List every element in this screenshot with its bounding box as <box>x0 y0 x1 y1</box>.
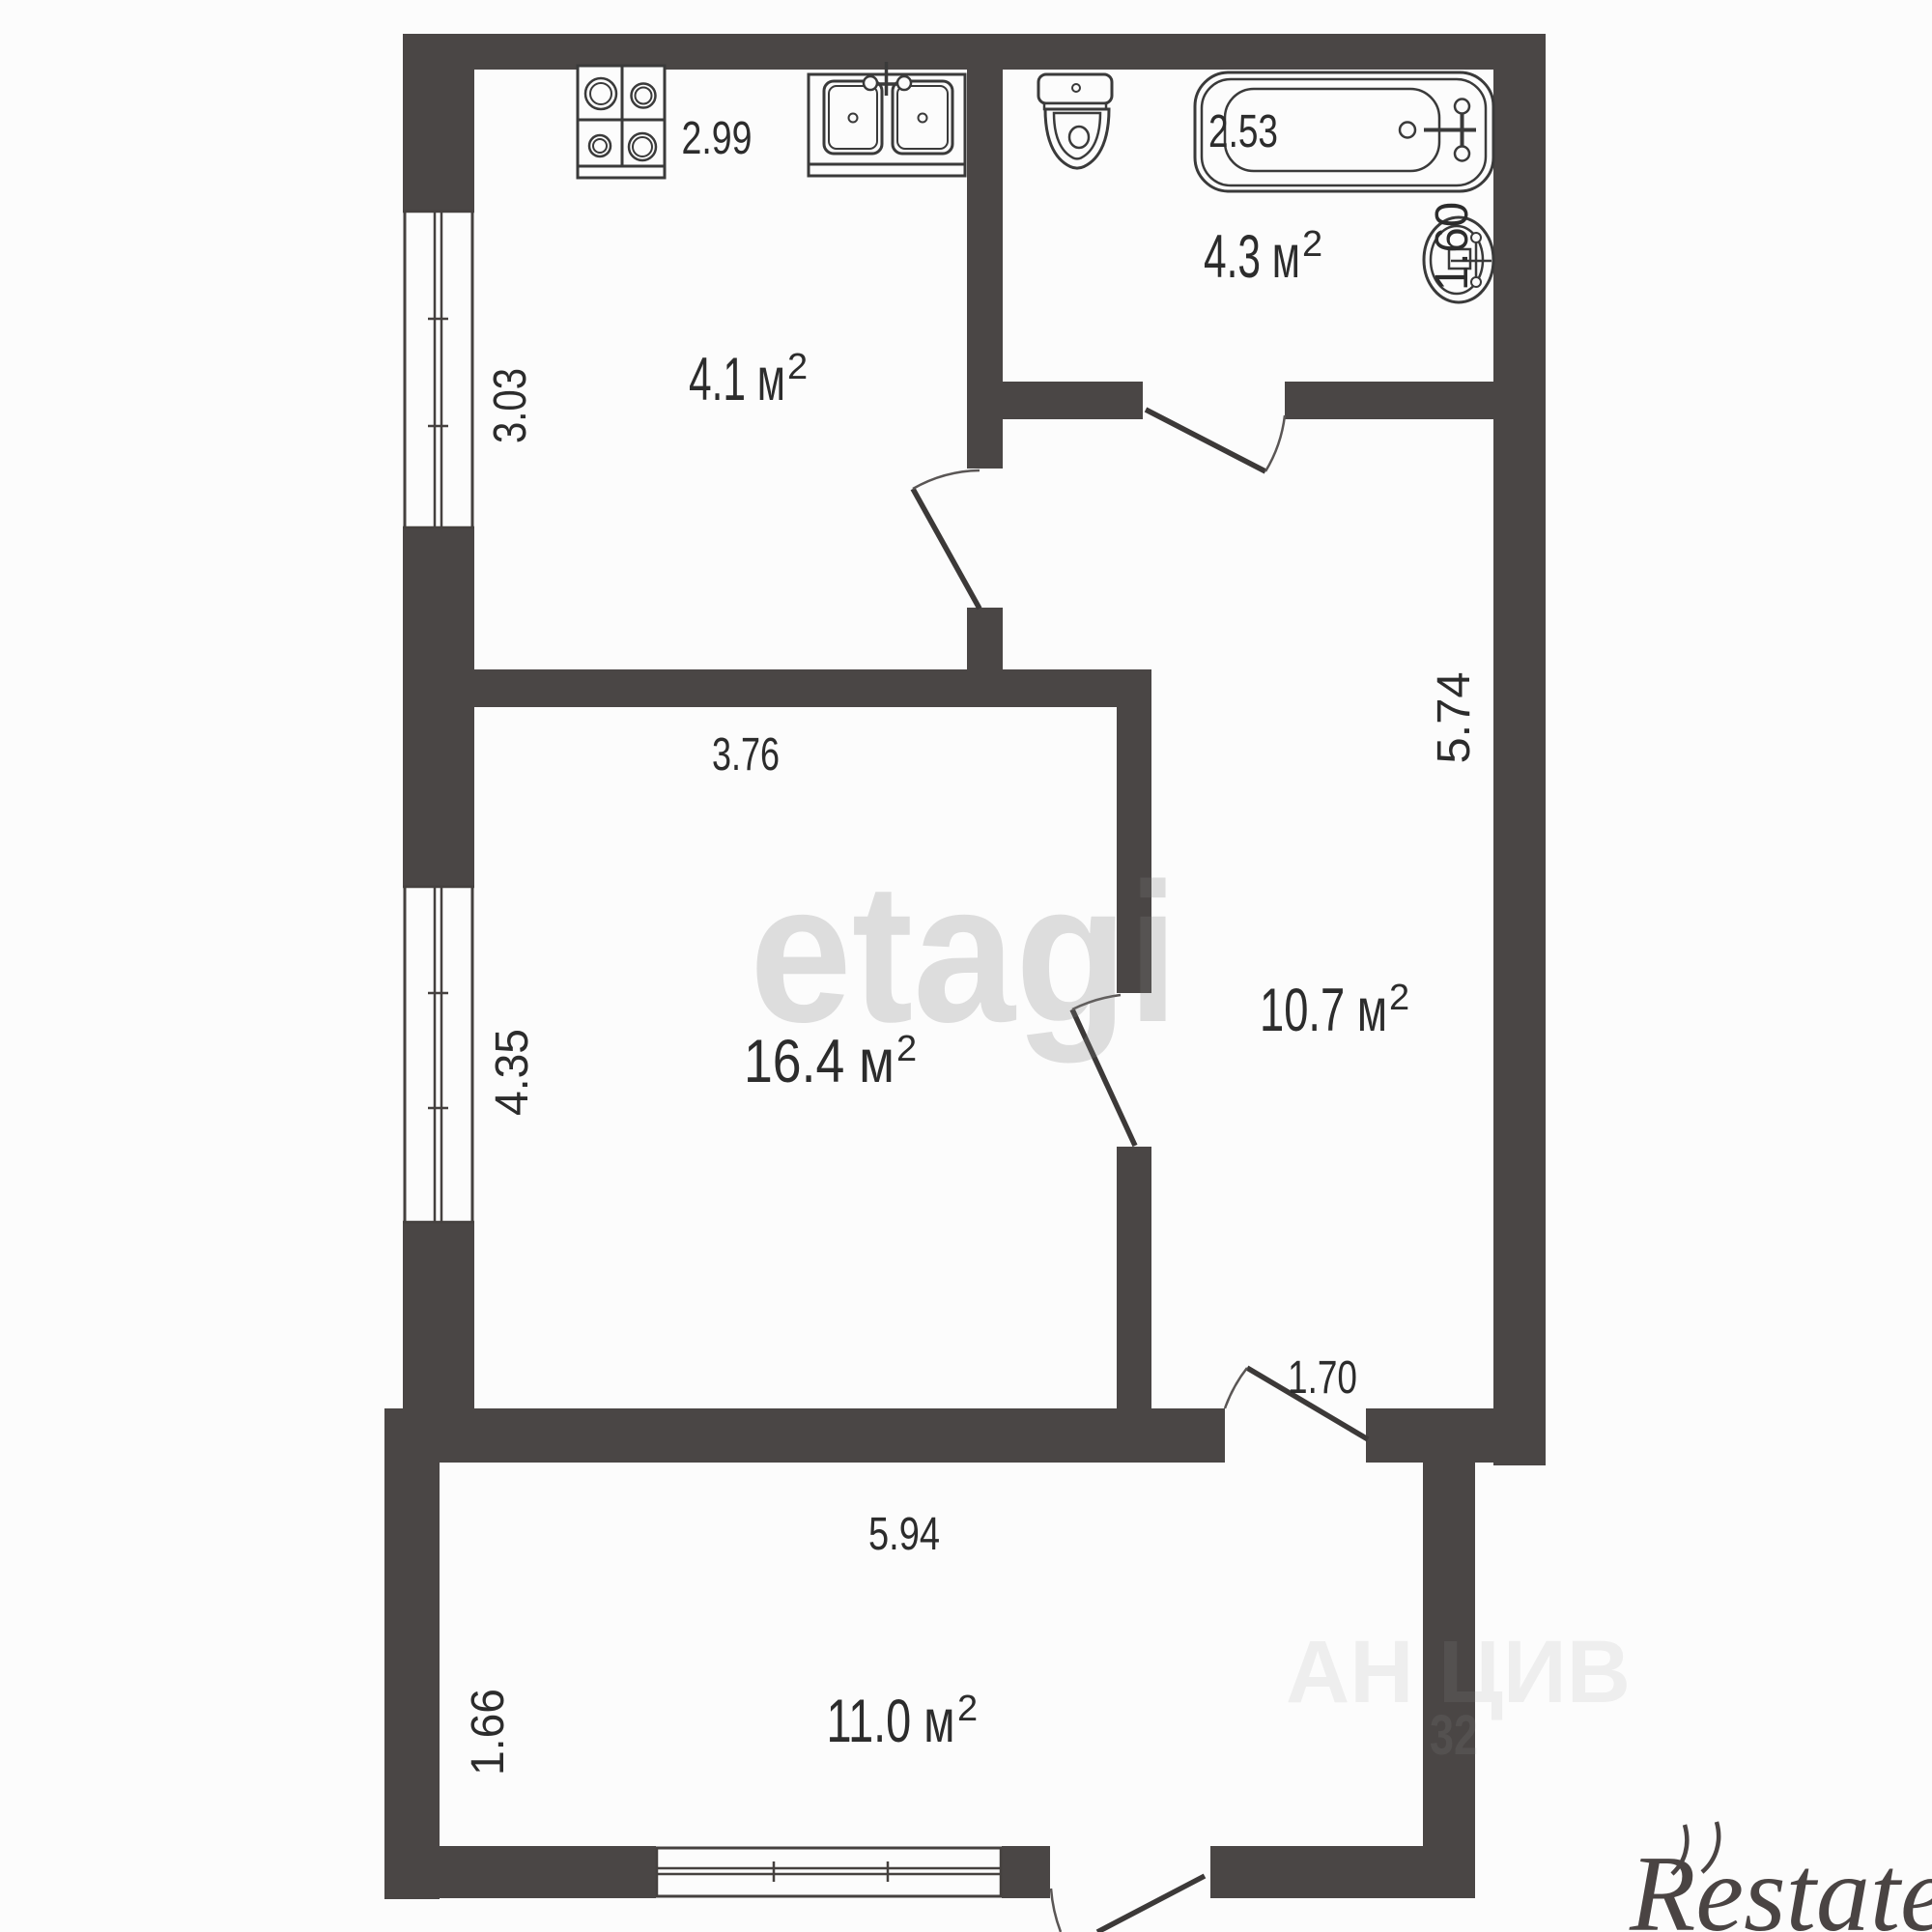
svg-text:4.35: 4.35 <box>487 1029 538 1116</box>
svg-text:1.60: 1.60 <box>1427 202 1478 291</box>
svg-text:1.66: 1.66 <box>463 1689 514 1776</box>
svg-text:5.94: 5.94 <box>868 1509 940 1560</box>
svg-text:5.74: 5.74 <box>1429 672 1480 764</box>
svg-text:2: 2 <box>787 347 808 387</box>
svg-text:4.1 м: 4.1 м <box>689 346 785 413</box>
svg-text:32: 32 <box>1430 1704 1478 1767</box>
svg-text:3.03: 3.03 <box>485 368 536 443</box>
svg-text:3.76: 3.76 <box>712 729 780 781</box>
svg-text:2: 2 <box>957 1689 978 1729</box>
svg-text:1.70: 1.70 <box>1288 1352 1357 1404</box>
svg-text:2.99: 2.99 <box>682 113 753 164</box>
svg-text:Restate: Restate <box>1629 1834 1932 1932</box>
svg-text:4.3 м: 4.3 м <box>1204 223 1300 291</box>
svg-text:2.53: 2.53 <box>1208 106 1278 157</box>
svg-text:10.7 м: 10.7 м <box>1260 977 1387 1044</box>
svg-text:2: 2 <box>1302 224 1322 265</box>
svg-text:etagi: etagi <box>750 842 1179 1064</box>
svg-text:11.0 м: 11.0 м <box>827 1688 955 1755</box>
svg-text:2: 2 <box>1389 978 1409 1018</box>
